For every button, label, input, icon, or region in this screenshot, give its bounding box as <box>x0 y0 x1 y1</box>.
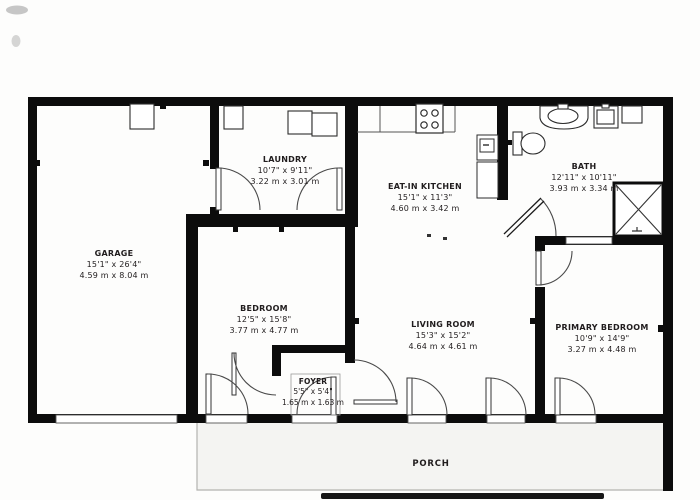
washer-icon <box>288 111 312 134</box>
room-name: LIVING ROOM <box>411 320 475 329</box>
tick-mark <box>233 227 238 232</box>
tick-mark <box>508 140 512 145</box>
room-name: LAUNDRY <box>263 155 307 164</box>
tick-mark <box>35 160 40 166</box>
room-dim-metric: 3.93 m x 3.34 m <box>549 184 618 193</box>
room-dim-imperial: 15'3" x 15'2" <box>416 331 471 340</box>
foyer-living-door-leaf <box>354 400 397 404</box>
room-dim-imperial: 15'1" x 26'4" <box>87 260 142 269</box>
room-label-bath: BATH 12'11" x 10'11" 3.93 m x 3.34 m <box>549 162 618 193</box>
room-dim-metric: 3.77 m x 4.77 m <box>229 326 298 335</box>
second-sink-icon <box>594 104 618 128</box>
floorplan-svg: GARAGE 15'1" x 26'4" 4.59 m x 8.04 m LAU… <box>0 0 700 500</box>
bath-door-leaf <box>507 201 544 237</box>
primary-entry-door-leaf <box>536 251 541 285</box>
faucet <box>558 104 568 109</box>
front-door-leaf <box>331 377 336 415</box>
door-arc <box>410 378 447 415</box>
room-label-kitchen: EAT-IN KITCHEN 15'1" x 11'3" 4.60 m x 3.… <box>388 182 462 213</box>
room-label-porch: PORCH <box>412 459 449 469</box>
front-door-threshold <box>292 415 337 423</box>
door-arc <box>218 168 260 210</box>
room-name: PORCH <box>412 459 449 469</box>
floorplan-image: GARAGE 15'1" x 26'4" 4.59 m x 8.04 m LAU… <box>0 0 700 500</box>
laundry-door-leaf-left <box>216 168 221 210</box>
door-arc <box>208 374 248 414</box>
shower-icon <box>614 183 663 236</box>
wall-living-primary <box>535 287 545 423</box>
garage-fixtures <box>130 104 154 129</box>
primary-exterior-door-leaf <box>555 378 560 415</box>
kitchen-cabinet <box>477 162 498 198</box>
sink-basin <box>597 110 614 124</box>
room-label-living: LIVING ROOM 15'3" x 15'2" 4.64 m x 4.61 … <box>408 320 477 351</box>
wall-garage-laundry <box>210 97 219 169</box>
kitchen-sink-icon <box>477 135 498 198</box>
room-dim-imperial: 12'11" x 10'11" <box>551 173 616 182</box>
wall-kitchen-bath <box>497 97 508 200</box>
bedroom-exterior-door-leaf <box>206 374 211 414</box>
door-arc <box>489 378 526 415</box>
scan-edge-bar <box>321 493 604 499</box>
door-leaves <box>206 168 560 415</box>
bath-cased-opening <box>566 237 612 244</box>
room-label-bedroom: BEDROOM 12'5" x 15'8" 3.77 m x 4.77 m <box>229 304 298 335</box>
room-dim-imperial: 5'5" x 5'4" <box>293 387 332 396</box>
wall-exterior-left <box>28 97 37 423</box>
tick-mark <box>160 105 166 109</box>
stove-icon <box>416 104 443 133</box>
scan-smudge <box>6 6 28 15</box>
wall-foyer-top <box>272 345 345 353</box>
wall-laundry-bedroom <box>186 214 358 227</box>
room-name: FOYER <box>299 377 328 386</box>
primary-door-threshold <box>556 415 596 423</box>
tick-mark <box>658 325 663 332</box>
living-door-leaf-2 <box>486 378 491 415</box>
living-door-leaf-1 <box>407 378 412 415</box>
laundry-fixtures <box>224 106 337 136</box>
porch-area <box>197 422 664 490</box>
room-dim-metric: 4.64 m x 4.61 m <box>408 342 477 351</box>
room-name: BEDROOM <box>240 304 288 313</box>
wall-exterior-right <box>663 97 673 491</box>
tick-mark <box>203 160 209 166</box>
tick-mark <box>530 318 535 324</box>
scan-smudge <box>12 35 21 47</box>
faucet <box>602 104 609 108</box>
door-arc <box>234 353 276 395</box>
bath-cabinet-icon <box>622 106 642 123</box>
wall-garage-bedroom <box>186 214 198 423</box>
tick-mark <box>427 234 431 237</box>
utility-cabinet-icon <box>224 106 243 129</box>
tick-mark <box>279 227 284 232</box>
door-arc <box>538 251 572 285</box>
laundry-door-leaf-right <box>337 168 342 210</box>
room-name: PRIMARY BEDROOM <box>555 323 648 332</box>
wall-laundry-kitchen <box>345 97 358 218</box>
wall-bedroom-living <box>345 227 355 363</box>
door-arc <box>541 199 556 236</box>
toilet-icon <box>513 132 545 155</box>
door-arc <box>558 378 595 415</box>
wall-hall-primary-stub <box>535 236 545 251</box>
room-label-primary: PRIMARY BEDROOM 10'9" x 14'9" 3.27 m x 4… <box>555 323 648 354</box>
room-dim-imperial: 12'5" x 15'8" <box>237 315 292 324</box>
living-door-threshold-2 <box>487 415 525 423</box>
bath-door-leaf <box>504 198 541 234</box>
room-dim-imperial: 10'9" x 14'9" <box>575 334 630 343</box>
living-door-threshold-1 <box>408 415 446 423</box>
vanity-sink-icon <box>540 104 588 129</box>
stove-body <box>416 104 443 133</box>
tick-mark <box>443 237 447 240</box>
dryer-icon <box>312 113 337 136</box>
room-name: BATH <box>572 162 597 171</box>
tick-mark <box>355 318 359 324</box>
bath-door <box>504 198 544 237</box>
porch-slab <box>197 422 663 490</box>
room-dim-metric: 4.59 m x 8.04 m <box>79 271 148 280</box>
door-arc <box>354 360 396 402</box>
room-name: GARAGE <box>95 249 134 258</box>
water-heater-icon <box>130 104 154 129</box>
room-label-laundry: LAUNDRY 10'7" x 9'11" 3.22 m x 3.01 m <box>250 155 319 186</box>
toilet-bowl <box>521 133 545 154</box>
wall-foyer-left <box>272 345 281 376</box>
room-dim-metric: 3.22 m x 3.01 m <box>250 177 319 186</box>
room-dim-imperial: 15'1" x 11'3" <box>398 193 453 202</box>
garage-door-opening <box>56 415 177 423</box>
room-dim-metric: 4.60 m x 3.42 m <box>390 204 459 213</box>
bedroom-exterior-door-threshold <box>206 415 247 423</box>
room-dim-metric: 3.27 m x 4.48 m <box>567 345 636 354</box>
room-name: EAT-IN KITCHEN <box>388 182 462 191</box>
room-label-garage: GARAGE 15'1" x 26'4" 4.59 m x 8.04 m <box>79 249 148 280</box>
room-dim-imperial: 10'7" x 9'11" <box>258 166 313 175</box>
room-dim-metric: 1.65 m x 1.63 m <box>282 398 344 407</box>
